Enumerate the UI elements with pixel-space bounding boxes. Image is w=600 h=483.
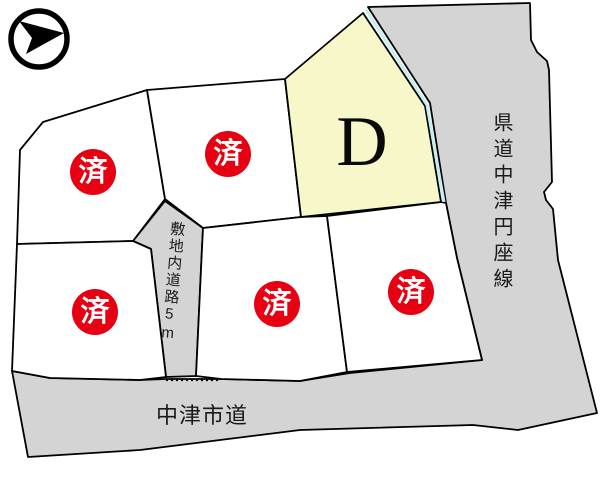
sold-badge-lower-left: 済 — [72, 289, 118, 335]
north-arrow-icon — [11, 11, 67, 67]
road-label-prefectural: 県道中津円座線 — [487, 112, 516, 294]
sold-badge-upper-left: 済 — [70, 149, 116, 195]
site-map: D 済 済 済 済 済 県道中津円座線 敷地内道路5m 中津市道 — [0, 0, 600, 483]
sold-badge-lower-right: 済 — [388, 269, 434, 315]
lot-d-label: D — [312, 100, 412, 184]
sold-badge-lower-middle: 済 — [254, 281, 300, 327]
road-label-city: 中津市道 — [156, 398, 248, 430]
sold-badge-upper-middle: 済 — [205, 131, 251, 177]
